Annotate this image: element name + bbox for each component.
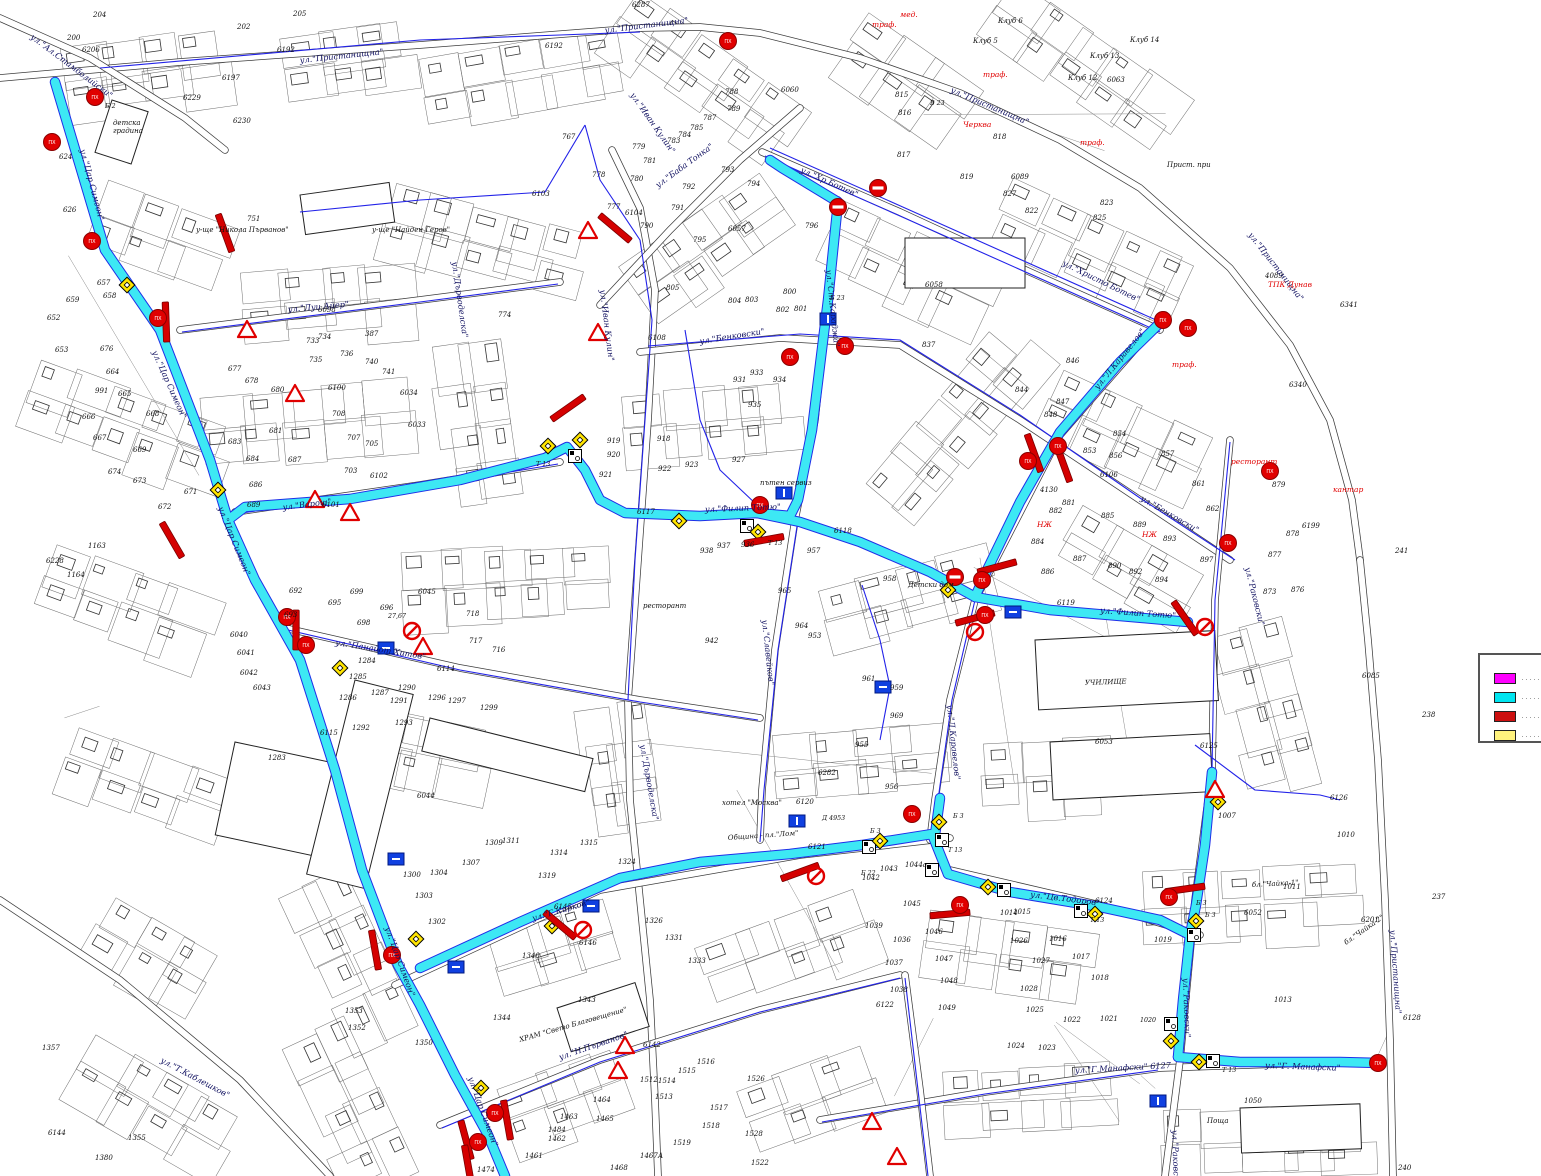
technical-note: Б 2 bbox=[104, 103, 116, 110]
parcel-number: 934 bbox=[773, 376, 786, 384]
technical-note-line: Т 13 bbox=[536, 461, 550, 468]
triangle-symbol bbox=[341, 504, 359, 520]
parcel-outline bbox=[1277, 732, 1322, 792]
parcel-number-line: 817 bbox=[897, 151, 911, 159]
hydrant-label: ПХ bbox=[154, 316, 162, 322]
technical-note-line: Т 13 bbox=[948, 847, 962, 854]
hydrant-label: ПХ bbox=[724, 39, 732, 45]
parcel-number-line: 804 bbox=[728, 297, 741, 305]
street-name: ул."Раковски" bbox=[1181, 977, 1193, 1038]
parcel-number-line: 1314 bbox=[550, 849, 568, 857]
parcel-number-line: 689 bbox=[247, 501, 261, 509]
parcel-number-line: 934 bbox=[773, 376, 786, 384]
parcel-number-line: 892 bbox=[1129, 568, 1143, 576]
parcel-number: 955 bbox=[855, 741, 869, 749]
parcel-number: 862 bbox=[1206, 505, 1220, 513]
parcel-number-line: 6106 bbox=[1100, 471, 1118, 479]
prohibited-slash bbox=[810, 870, 822, 882]
parcel-number: 854 bbox=[1113, 430, 1126, 438]
parcel-number-line: 1326 bbox=[645, 917, 663, 925]
building-outline bbox=[791, 1110, 806, 1122]
parcel-number: 897 bbox=[1200, 556, 1214, 564]
parcel-number-line: 922 bbox=[658, 465, 672, 473]
poi-label: пътен сервиз bbox=[760, 479, 812, 487]
technical-note-line: Т 13 bbox=[1222, 1067, 1236, 1074]
building-outline bbox=[1244, 670, 1255, 685]
parcel-number-line: 673 bbox=[133, 477, 147, 485]
parcel-number-line: 699 bbox=[350, 588, 364, 596]
parcel-number-line: 6144 bbox=[48, 1129, 66, 1137]
building-outline bbox=[331, 1021, 348, 1041]
parcel-number: 1474 bbox=[477, 1166, 495, 1174]
parcel-number: 6192 bbox=[277, 46, 295, 54]
building-outline bbox=[152, 927, 166, 940]
parcel-outline bbox=[963, 916, 1014, 967]
building-outline bbox=[663, 239, 681, 257]
parcel-number: 684 bbox=[246, 455, 259, 463]
triangle-symbol bbox=[579, 222, 597, 238]
map-viewport[interactable]: ПХПХПХПХПХПХПХПХПХПХПХПХПХПХПХПХПХПХПХПХ… bbox=[0, 0, 1541, 1176]
parcel-number: 844 bbox=[1015, 386, 1028, 394]
parcel-number: 1343 bbox=[578, 996, 596, 1004]
parcel-number-line: 931 bbox=[733, 376, 746, 384]
parcel-outline bbox=[941, 411, 998, 469]
building-outline bbox=[1050, 9, 1063, 21]
parcel-number: 1468 bbox=[610, 1164, 628, 1172]
parcel-number: 936 bbox=[741, 541, 755, 549]
parcel-number: 1039 bbox=[865, 922, 883, 930]
boundary-line bbox=[980, 558, 1014, 784]
parcel-number-line: 816 bbox=[898, 109, 912, 117]
building-outline bbox=[706, 943, 726, 960]
parcel-number-line: 1353 bbox=[345, 1007, 363, 1015]
red-annotation: мед. bbox=[900, 10, 918, 19]
parcel-number: 846 bbox=[1066, 357, 1080, 365]
parcel-number: 6199 bbox=[1302, 522, 1320, 530]
technical-note: Т 13 bbox=[948, 847, 962, 854]
parcel-number-line: 6060 bbox=[781, 86, 799, 94]
parcel-outline bbox=[119, 227, 186, 280]
parcel-outline bbox=[372, 1127, 419, 1176]
parcel-number-line: 1015 bbox=[1013, 908, 1031, 916]
parcel-number-line: 1304 bbox=[430, 869, 448, 877]
parcel-number: 817 bbox=[897, 151, 911, 159]
manhole-detail bbox=[999, 885, 1003, 889]
hydrant-label: ПХ bbox=[88, 239, 96, 245]
no-entry-bar bbox=[833, 205, 844, 208]
parcel-number: 1007 bbox=[1218, 812, 1236, 820]
parcel-number-line: 956 bbox=[885, 783, 899, 791]
parcel-number: 1163 bbox=[88, 542, 106, 550]
parcel-outline bbox=[70, 728, 119, 769]
building-outline bbox=[82, 737, 98, 751]
parcel-number-line: 6230 bbox=[233, 117, 251, 125]
parcel-number-line: 718 bbox=[466, 610, 480, 618]
parcel-outline bbox=[361, 411, 419, 458]
parcel-number: 894 bbox=[1155, 576, 1168, 584]
parcel-number-line: 921 bbox=[599, 471, 612, 479]
parcel-number-line: 1380 bbox=[95, 1154, 113, 1162]
building-outline bbox=[466, 250, 481, 263]
parcel-number: 699 bbox=[350, 588, 364, 596]
legend-swatch-cyan bbox=[1494, 692, 1516, 703]
parcel-number-line: 6044 bbox=[417, 792, 435, 800]
building-outline bbox=[250, 400, 267, 410]
parcel-number-line: 6206 bbox=[82, 46, 100, 54]
parcel-number: 792 bbox=[682, 183, 696, 191]
parcel-number: 205 bbox=[292, 10, 307, 18]
parcel-number-line: 1463 bbox=[560, 1113, 578, 1121]
parcel-number-line: 1467А bbox=[640, 1152, 663, 1160]
building-outline bbox=[1178, 432, 1195, 445]
parcel-number-line: 1517 bbox=[710, 1104, 728, 1112]
parcel-number: 991 bbox=[95, 387, 108, 395]
parcel-number-line: 6104 bbox=[625, 209, 643, 217]
parcel-number-line: 789 bbox=[727, 105, 741, 113]
building-outline bbox=[1095, 87, 1111, 101]
street-name-line: ул."Бенковски" bbox=[1138, 493, 1201, 535]
parcel-number-line: 6126 bbox=[1330, 794, 1348, 802]
parcel-number-line: 965 bbox=[778, 587, 792, 595]
parcel-number: 787 bbox=[703, 114, 717, 122]
red-annotation: НЖ bbox=[1036, 520, 1053, 529]
boundary-line bbox=[924, 114, 1166, 115]
building-outline bbox=[711, 243, 731, 261]
parcel-outline bbox=[746, 942, 815, 993]
parcel-number-line: 882 bbox=[1049, 507, 1063, 515]
parcel-number: 935 bbox=[748, 401, 762, 409]
building-outline bbox=[65, 762, 80, 774]
parcel-number-line: 1019 bbox=[1154, 936, 1172, 944]
parcel-number-line: 652 bbox=[47, 314, 61, 322]
road-surface bbox=[180, 282, 560, 330]
parcel-number: 1293 bbox=[395, 719, 413, 727]
parcel-number: 6228 bbox=[46, 557, 64, 565]
poi-label: Клуб 14 bbox=[1129, 36, 1159, 44]
parcel-number: 1017 bbox=[1072, 953, 1090, 961]
parcel-number-line: 683 bbox=[228, 438, 242, 446]
parcel-number: 780 bbox=[630, 175, 644, 183]
parcel-number: 767 bbox=[562, 133, 576, 141]
water-service-line bbox=[862, 585, 890, 740]
manhole-detail bbox=[927, 865, 931, 869]
parcel-number: 1333 bbox=[688, 957, 706, 965]
parcel-number-line: 241 bbox=[1394, 547, 1408, 555]
technical-note-line: Б 2 bbox=[104, 103, 116, 110]
parcel-outline bbox=[458, 339, 508, 394]
poi-label-line: пътен сервиз bbox=[760, 479, 812, 487]
parcel-number-line: 1024 bbox=[1007, 1042, 1025, 1050]
parcel-number: 734 bbox=[318, 333, 331, 341]
parcel-outline bbox=[999, 178, 1050, 226]
parcel-number: 873 bbox=[1263, 588, 1277, 596]
parcel-number-line: 1319 bbox=[538, 872, 556, 880]
technical-note: Д 4953 bbox=[821, 815, 845, 822]
building-outline bbox=[505, 46, 520, 56]
parcel-number-line: 854 bbox=[1113, 430, 1126, 438]
poi-label: у-ще "Никола Първанов" bbox=[195, 226, 289, 234]
parcel-number-line: 788 bbox=[725, 88, 739, 96]
parcel-number: 1513 bbox=[655, 1093, 673, 1101]
parcel-number-line: 822 bbox=[1025, 207, 1039, 215]
building-outline bbox=[465, 55, 483, 66]
hydrant-label: ПХ bbox=[956, 903, 964, 909]
hydrant-label: ПХ bbox=[1224, 541, 1232, 547]
building-outline bbox=[369, 1092, 384, 1110]
red-annotation-line: Черква bbox=[963, 120, 991, 129]
parcel-number: 1331 bbox=[665, 934, 683, 942]
parcel-number-line: 1303 bbox=[415, 892, 433, 900]
parcel-number-line: 6142 bbox=[643, 1041, 661, 1049]
parcel-outline bbox=[1061, 1099, 1119, 1128]
technical-note: Б 3 bbox=[952, 813, 964, 820]
parcel-number-line: 6053 bbox=[1095, 738, 1113, 746]
building-outline bbox=[816, 907, 832, 922]
red-annotation-line: ТПК Дунав bbox=[1268, 280, 1313, 289]
parcel-number: 6103 bbox=[532, 190, 550, 198]
parcel-number-line: 671 bbox=[184, 488, 197, 496]
parcel-number-line: 1512 bbox=[640, 1076, 658, 1084]
building-outline bbox=[126, 609, 139, 621]
parcel-number: 1326 bbox=[645, 917, 663, 925]
parcel-number-line: 6115 bbox=[320, 729, 338, 737]
parcel-number: 695 bbox=[328, 599, 342, 607]
parcel-outline bbox=[163, 1124, 230, 1176]
parcel-number-line: 696 bbox=[380, 604, 394, 612]
parcel-number-line: 1027 bbox=[1032, 957, 1050, 965]
parcel-number-line: 1284 bbox=[358, 657, 376, 665]
parcel-number: 856 bbox=[1109, 452, 1123, 460]
parcel-number: 751 bbox=[247, 215, 260, 223]
parcel-number-line: 659 bbox=[66, 296, 80, 304]
technical-note: Т 13 bbox=[1222, 1067, 1236, 1074]
manhole-detail bbox=[570, 451, 574, 455]
parcel-number-line: 1293 bbox=[395, 719, 413, 727]
parcel-number: 878 bbox=[1286, 530, 1300, 538]
technical-note: В 23 bbox=[929, 100, 945, 107]
parcel-number-line: 1048 bbox=[940, 977, 958, 985]
parcel-number-line: 959 bbox=[890, 684, 904, 692]
parcel-outline bbox=[976, 5, 1037, 62]
parcel-number-line: 1285 bbox=[349, 673, 367, 681]
parcel-number-line: 658 bbox=[103, 292, 117, 300]
street-name: ул."Иван Кулин" bbox=[598, 288, 617, 362]
building-outline bbox=[554, 229, 569, 243]
parcel-number: 1467А bbox=[640, 1152, 663, 1160]
parcel-number: 1462 bbox=[548, 1135, 566, 1143]
parcel-number-line: 708 bbox=[332, 410, 346, 418]
parcel-number-line: 1028 bbox=[1020, 985, 1038, 993]
parcel-number: 6060 bbox=[781, 86, 799, 94]
building-outline bbox=[285, 277, 299, 287]
parcel-number-line: 818 bbox=[993, 133, 1007, 141]
poi-label-line: Клуб 5 bbox=[972, 37, 998, 45]
parcel-outline bbox=[158, 240, 223, 291]
parcel-number: 1292 bbox=[352, 724, 370, 732]
parcel-number: 892 bbox=[1129, 568, 1143, 576]
legend-swatch-yellow bbox=[1494, 730, 1516, 741]
parcel-number: 796 bbox=[805, 222, 819, 230]
parcel-number: 708 bbox=[332, 410, 346, 418]
parcel-number: 698 bbox=[357, 619, 371, 627]
parcel-number: 1350 bbox=[415, 1039, 433, 1047]
water-main bbox=[55, 82, 505, 1176]
parcel-number: 827 bbox=[1003, 190, 1017, 198]
parcel-number-line: 1302 bbox=[428, 918, 446, 926]
building-outline bbox=[1148, 554, 1168, 571]
parcel-number: 857 bbox=[1161, 450, 1175, 458]
parcel-number: 6057 bbox=[728, 225, 746, 233]
parcel-number-line: 795 bbox=[693, 236, 707, 244]
parcel-number-line: 1468 bbox=[610, 1164, 628, 1172]
parcel-number-line: 1309 bbox=[485, 839, 503, 847]
parcel-number: 6053 bbox=[1095, 738, 1113, 746]
parcel-number: 238 bbox=[1421, 711, 1436, 719]
street-name: ул."Бенковски" bbox=[1138, 493, 1201, 535]
parcel-number-line: 703 bbox=[344, 467, 358, 475]
street-name: ул."Г. Манафски" bbox=[1264, 1060, 1341, 1073]
parcel-number-line: 887 bbox=[1073, 555, 1087, 563]
parcel-number: 703 bbox=[344, 467, 358, 475]
legend-item-water-main: ......... bbox=[1494, 669, 1541, 688]
building-outline bbox=[816, 741, 826, 753]
building-outline bbox=[973, 348, 990, 365]
parcel-number: 626 bbox=[63, 206, 77, 214]
parcel-number: 1528 bbox=[745, 1130, 763, 1138]
parcel-number: 882 bbox=[1049, 507, 1063, 515]
manhole-detail bbox=[1076, 906, 1080, 910]
technical-note-line: Б 22 bbox=[860, 870, 876, 877]
parcel-number-line: 6103 bbox=[532, 190, 550, 198]
technical-note: 27,67 bbox=[387, 613, 406, 620]
parcel-number-line: 6063 bbox=[1107, 76, 1125, 84]
parcel-number: 6192 bbox=[545, 42, 563, 50]
parcel-number-line: 6118 bbox=[834, 527, 852, 535]
parcel-number: 653 bbox=[55, 346, 69, 354]
marker-glyph bbox=[452, 966, 460, 968]
parcel-number: 1044а bbox=[905, 861, 927, 869]
parcel-number-line: 693 bbox=[284, 611, 298, 619]
parcel-outline bbox=[865, 218, 911, 261]
building-outline bbox=[326, 929, 343, 949]
parcel-number-line: 740 bbox=[365, 358, 379, 366]
building-outline bbox=[141, 794, 158, 808]
parcel-number-line: 238 bbox=[1421, 711, 1436, 719]
parcel-number-line: 1340 bbox=[522, 952, 540, 960]
building-outline bbox=[1310, 873, 1327, 883]
poi-label-line: у-ще "Найден Геров" bbox=[371, 226, 450, 234]
manhole-detail bbox=[1208, 1056, 1212, 1060]
technical-note: 1020 bbox=[1140, 1017, 1156, 1024]
no-entry-bar bbox=[950, 575, 961, 578]
technical-note-line: Т 13 bbox=[1090, 917, 1104, 924]
parcel-number: 800 bbox=[783, 288, 797, 296]
street-name: ул."Л.Каравелов" bbox=[945, 703, 963, 780]
parcel-number-line: 705 bbox=[365, 440, 379, 448]
building-outline bbox=[180, 451, 199, 467]
parcel-number: 6144 bbox=[48, 1129, 66, 1137]
parcel-number-line: 803 bbox=[745, 296, 759, 304]
poi-label-line: Клуб 12 bbox=[1067, 74, 1098, 82]
parcel-number: 848 bbox=[1044, 411, 1058, 419]
building-outline bbox=[748, 425, 759, 436]
parcel-outline bbox=[521, 583, 564, 617]
parcel-number: 1022 bbox=[1063, 1016, 1081, 1024]
building-outline bbox=[116, 905, 130, 919]
building-outline bbox=[406, 556, 422, 568]
parcel-number: 1464 bbox=[593, 1096, 611, 1104]
parcel-outline bbox=[130, 194, 179, 249]
building-outline bbox=[304, 1043, 321, 1063]
parcel-number: 825 bbox=[1093, 214, 1107, 222]
street-name-line: ул."Христо Ботев" bbox=[1060, 257, 1141, 304]
parcel-outline bbox=[1213, 629, 1257, 676]
parcel-number-line: 785 bbox=[690, 124, 704, 132]
parcel-number-line: 780 bbox=[630, 175, 644, 183]
parcel-number: 666 bbox=[82, 413, 96, 421]
parcel-number: 957 bbox=[807, 547, 821, 555]
road-casing bbox=[440, 975, 900, 1125]
parcel-number: 1463 bbox=[560, 1113, 578, 1121]
parcel-number-line: 857 bbox=[1161, 450, 1175, 458]
parcel-number: 1353 bbox=[345, 1007, 363, 1015]
parcel-number-line: 653 bbox=[55, 346, 69, 354]
parcel-number-line: 1047 bbox=[935, 955, 953, 963]
parcel-outline bbox=[532, 942, 587, 986]
parcel-outline bbox=[694, 929, 758, 975]
parcel-number-line: 6146 bbox=[579, 939, 597, 947]
parcel-number: 885 bbox=[1101, 512, 1115, 520]
parcel-number: 672 bbox=[158, 503, 172, 511]
parcel-number: 969 bbox=[890, 712, 904, 720]
water-main bbox=[420, 834, 948, 968]
building-outline bbox=[331, 273, 345, 283]
parcel-number: 922 bbox=[658, 465, 672, 473]
parcel-number-line: 6043 bbox=[253, 684, 271, 692]
red-annotation: траф. bbox=[1080, 138, 1105, 147]
building-outline bbox=[209, 433, 225, 445]
building-outline bbox=[1123, 442, 1139, 456]
building-outline bbox=[1164, 259, 1180, 273]
parcel-number: 1047 bbox=[935, 955, 953, 963]
road-surface bbox=[1360, 560, 1393, 1176]
poi-label: Клуб 5 bbox=[972, 37, 998, 45]
building-outline bbox=[873, 473, 887, 488]
parcel-number-line: 692 bbox=[289, 587, 303, 595]
parcel-number-line: 1518 bbox=[702, 1122, 720, 1130]
parcel-outline bbox=[401, 550, 463, 591]
parcel-number: 736 bbox=[340, 350, 354, 358]
building-outline bbox=[783, 778, 799, 790]
parcel-number: 1284 bbox=[358, 657, 376, 665]
parcel-outline bbox=[495, 954, 548, 996]
parcel-number: 861 bbox=[1192, 480, 1205, 488]
building-outline bbox=[528, 587, 539, 599]
parcel-number-line: 886 bbox=[1041, 568, 1055, 576]
parcel-number: 705 bbox=[365, 440, 379, 448]
parcel-number-line: 735 bbox=[309, 356, 323, 364]
parcel-number-line: 1474 bbox=[477, 1166, 495, 1174]
parcel-number-line: 848 bbox=[1044, 411, 1058, 419]
street-name: ул."Христо Ботев" bbox=[1060, 257, 1141, 304]
legend-item-red: ......... bbox=[1494, 707, 1541, 726]
parcel-outline bbox=[1304, 864, 1356, 896]
parcel-number: 665 bbox=[118, 390, 132, 398]
parcel-number: 6128 bbox=[1403, 1014, 1421, 1022]
parcel-number: 822 bbox=[1025, 207, 1039, 215]
map-canvas[interactable]: ПХПХПХПХПХПХПХПХПХПХПХПХПХПХПХПХПХПХПХПХ… bbox=[0, 0, 1541, 1176]
parcel-number-line: 204 bbox=[92, 11, 106, 19]
